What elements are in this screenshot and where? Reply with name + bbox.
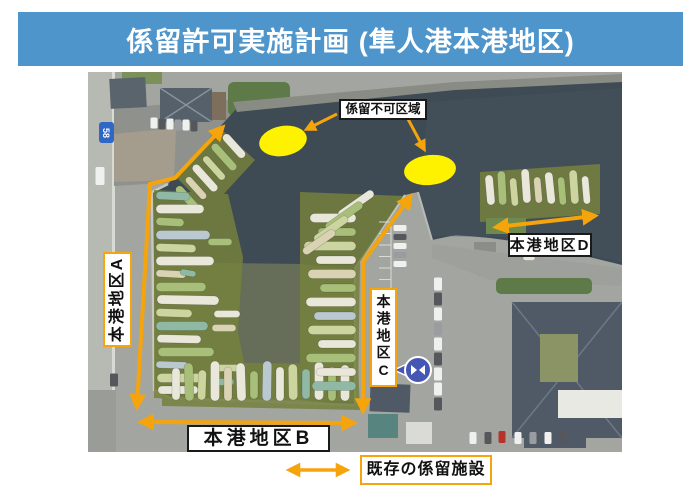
slide: 係留許可実施計画 (隼人港本港地区) xyxy=(0,0,700,495)
area-label-c: 本港地区C xyxy=(370,288,397,387)
aerial-photo: 係留不可区域 本港地区A 本港地区B 本港地区C 本港地区D 58 xyxy=(88,72,622,452)
no-mooring-zone-label: 係留不可区域 xyxy=(339,99,427,120)
teal-roof-building xyxy=(368,414,398,438)
pier-building xyxy=(370,383,411,412)
existing-mooring-arrow-icon xyxy=(280,462,356,478)
route-58-badge: 58 xyxy=(99,122,114,143)
white-roof xyxy=(558,390,622,418)
area-label-d: 本港地区D xyxy=(508,233,592,257)
courtyard xyxy=(540,334,578,382)
hedge xyxy=(496,278,592,294)
legend-label: 既存の係留施設 xyxy=(360,455,492,485)
aerial-photo-scene xyxy=(88,72,622,452)
area-label-b: 本港地区B xyxy=(187,425,330,452)
area-b-extent-arrow xyxy=(142,422,353,423)
area-label-a: 本港地区A xyxy=(103,252,132,347)
page-title: 係留許可実施計画 (隼人港本港地区) xyxy=(18,12,683,66)
building-roof xyxy=(109,77,147,109)
